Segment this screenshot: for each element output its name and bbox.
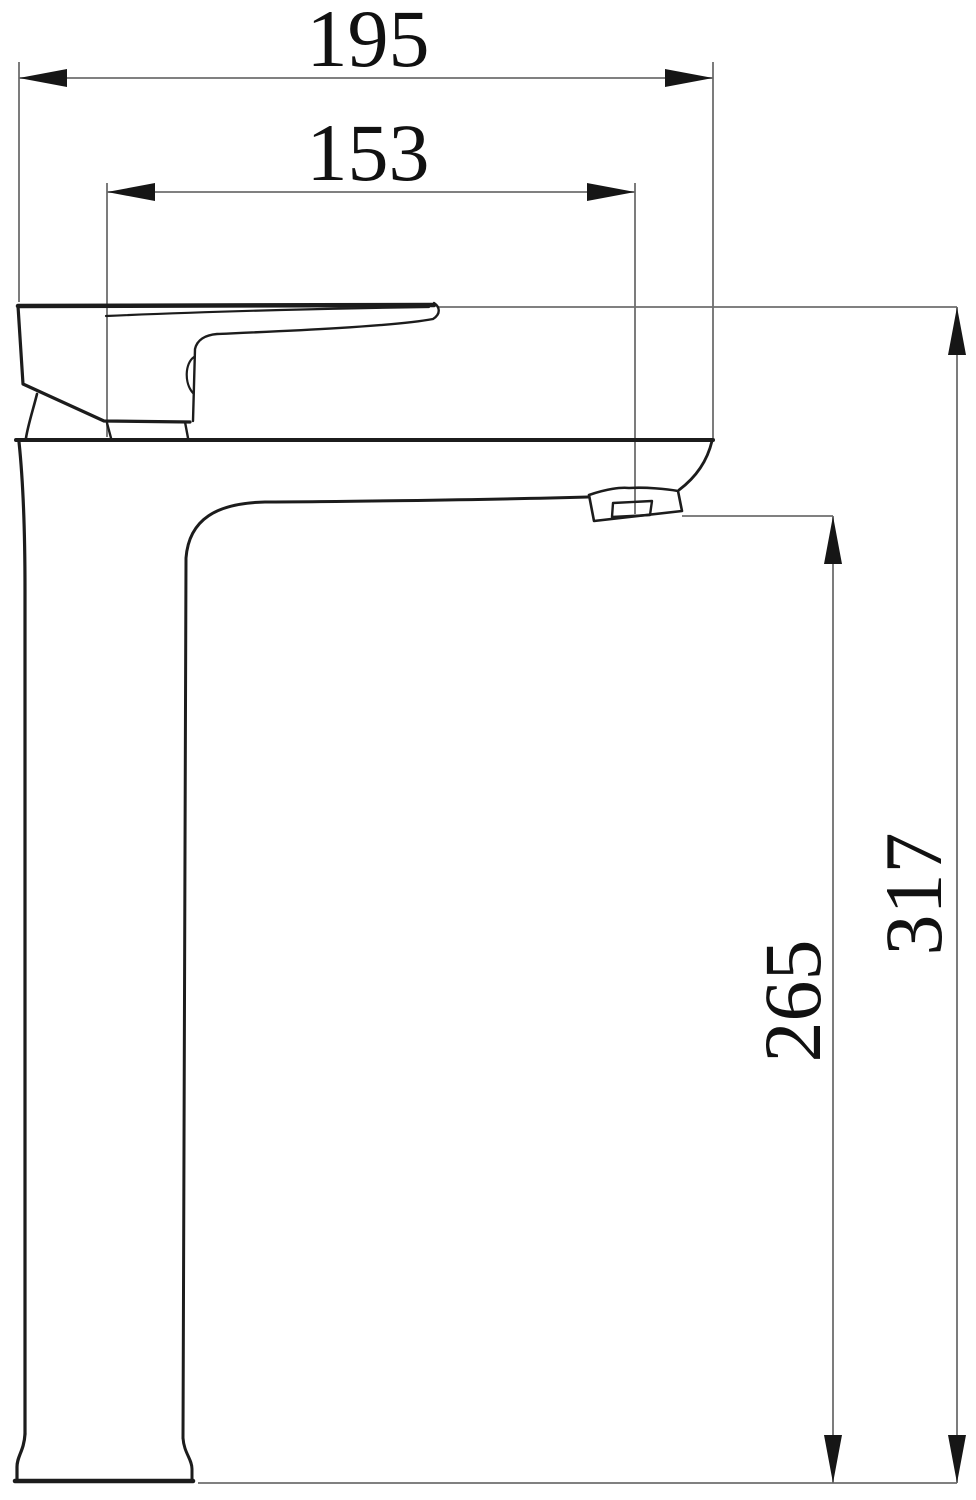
- lever-top-edge: [18, 305, 434, 306]
- arrow-195-right: [665, 69, 713, 87]
- dim-label-spout-height: 265: [747, 940, 838, 1063]
- cartridge-collar-right: [185, 422, 188, 438]
- drawing-canvas: 195 153 317 265: [0, 0, 976, 1500]
- dim-label-spout-reach: 153: [307, 107, 430, 198]
- faucet-dimension-drawing: 195 153 317 265: [0, 0, 976, 1500]
- handle-body-edge: [18, 306, 190, 422]
- lever-second-contour: [106, 307, 429, 316]
- arrow-265-top: [824, 516, 842, 564]
- spout-underside-and-column-right: [183, 497, 588, 1438]
- dim-label-total-width: 195: [307, 0, 430, 84]
- handle-front-curve: [26, 394, 37, 438]
- lever-underside-and-neck: [193, 303, 439, 421]
- arrow-153-left: [107, 183, 155, 201]
- arrow-317-bottom: [948, 1435, 966, 1483]
- dimension-labels: 195 153 317 265: [307, 0, 960, 1063]
- spout-shoulder-curve: [679, 441, 712, 490]
- aerator-inner-rect: [612, 501, 652, 517]
- arrow-317-top: [948, 307, 966, 355]
- arrow-195-left: [19, 69, 67, 87]
- base-right-flare: [183, 1438, 192, 1480]
- arrow-153-right: [587, 183, 635, 201]
- dimension-lines: [19, 62, 957, 1483]
- base-left-flare: [17, 1434, 25, 1480]
- arrow-265-bottom: [824, 1435, 842, 1483]
- dim-label-total-height: 317: [868, 833, 959, 956]
- dimension-arrowheads: [19, 69, 966, 1483]
- column-left-edge: [19, 442, 25, 1434]
- faucet-outline: [15, 303, 713, 1481]
